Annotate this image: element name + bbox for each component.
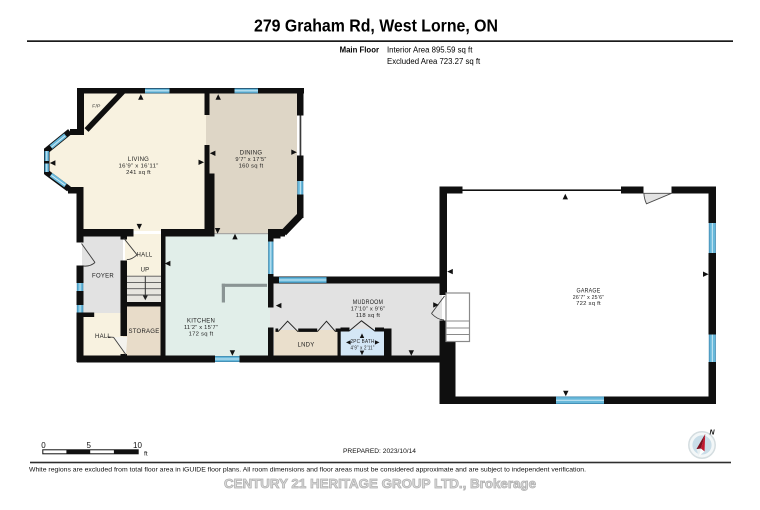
svg-text:UP: UP xyxy=(141,267,150,273)
svg-text:118 sq ft: 118 sq ft xyxy=(356,313,381,319)
svg-text:LIVING: LIVING xyxy=(128,157,149,163)
svg-text:279 Graham Rd, West Lorne, ON: 279 Graham Rd, West Lorne, ON xyxy=(254,16,498,36)
svg-text:5: 5 xyxy=(86,441,91,450)
svg-text:722 sq ft: 722 sq ft xyxy=(576,301,601,307)
svg-text:FOYER: FOYER xyxy=(92,273,114,279)
svg-text:PREPARED: 2023/10/14: PREPARED: 2023/10/14 xyxy=(343,448,416,455)
svg-text:241 sq ft: 241 sq ft xyxy=(126,170,151,176)
svg-text:16’9” x 16’11”: 16’9” x 16’11” xyxy=(119,163,159,169)
svg-text:White regions are excluded fro: White regions are excluded from total fl… xyxy=(29,466,586,473)
svg-text:172 sq ft: 172 sq ft xyxy=(189,332,214,338)
svg-text:17’10” x 9’6”: 17’10” x 9’6” xyxy=(351,307,386,313)
svg-text:4’9” x 2’11”: 4’9” x 2’11” xyxy=(351,345,375,351)
svg-text:Interior Area 895.59 sq ft: Interior Area 895.59 sq ft xyxy=(387,46,473,55)
svg-text:10: 10 xyxy=(133,441,142,450)
svg-text:HALL: HALL xyxy=(136,253,152,259)
svg-text:LNDY: LNDY xyxy=(297,343,314,349)
svg-text:MUDROOM: MUDROOM xyxy=(353,300,384,306)
svg-text:CENTURY 21 HERITAGE GROUP LTD.: CENTURY 21 HERITAGE GROUP LTD., Brokerag… xyxy=(224,476,536,491)
svg-text:KITCHEN: KITCHEN xyxy=(187,319,215,325)
svg-text:DINING: DINING xyxy=(240,151,263,157)
svg-text:0: 0 xyxy=(41,441,46,450)
svg-text:Excluded Area 723.27 sq ft: Excluded Area 723.27 sq ft xyxy=(387,57,481,66)
svg-text:HALL: HALL xyxy=(95,334,111,340)
svg-text:F/P: F/P xyxy=(92,103,101,108)
svg-text:ft: ft xyxy=(144,451,148,458)
svg-text:Main Floor: Main Floor xyxy=(340,46,379,55)
svg-text:26’7” x 25’6”: 26’7” x 25’6” xyxy=(573,295,605,301)
svg-text:2PC BATH: 2PC BATH xyxy=(351,339,375,345)
svg-text:STORAGE: STORAGE xyxy=(129,329,160,335)
svg-text:GARAGE: GARAGE xyxy=(577,289,601,295)
svg-text:11’2” x 15’7”: 11’2” x 15’7” xyxy=(184,325,218,331)
svg-text:160 sq ft: 160 sq ft xyxy=(239,164,264,170)
svg-text:9’7” x 17’5”: 9’7” x 17’5” xyxy=(235,157,266,163)
